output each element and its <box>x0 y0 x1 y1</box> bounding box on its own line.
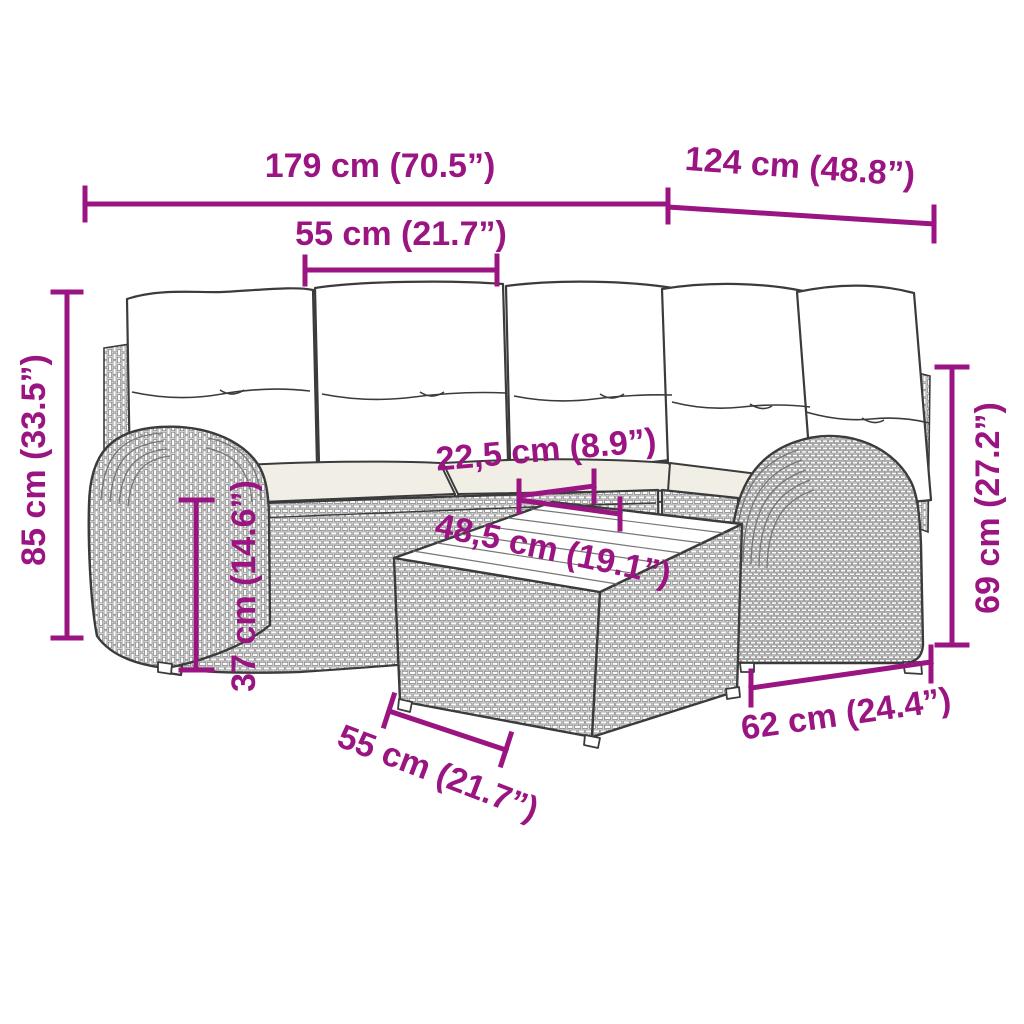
dim-label-armrest-height: 69 cm (27.2”) <box>971 402 1005 614</box>
dim-line-right-section-depth <box>668 207 934 241</box>
dimension-diagram: 179 cm (70.5”) 124 cm (48.8”) 55 cm (21.… <box>0 0 1024 1024</box>
dim-line-table-top-length <box>519 499 620 529</box>
dim-line-overall-height <box>53 292 81 638</box>
dim-label-sofa-total-width: 179 cm (70.5”) <box>265 149 496 183</box>
dim-line-seat-width-top <box>305 256 497 284</box>
dim-label-overall-height: 85 cm (33.5”) <box>17 354 51 566</box>
dim-label-seat-height: 37 cm (14.6”) <box>227 480 261 692</box>
dim-line-armrest-height <box>937 367 967 645</box>
dim-label-seat-width-top: 55 cm (21.7”) <box>295 217 507 251</box>
dim-line-seat-height <box>181 500 212 670</box>
